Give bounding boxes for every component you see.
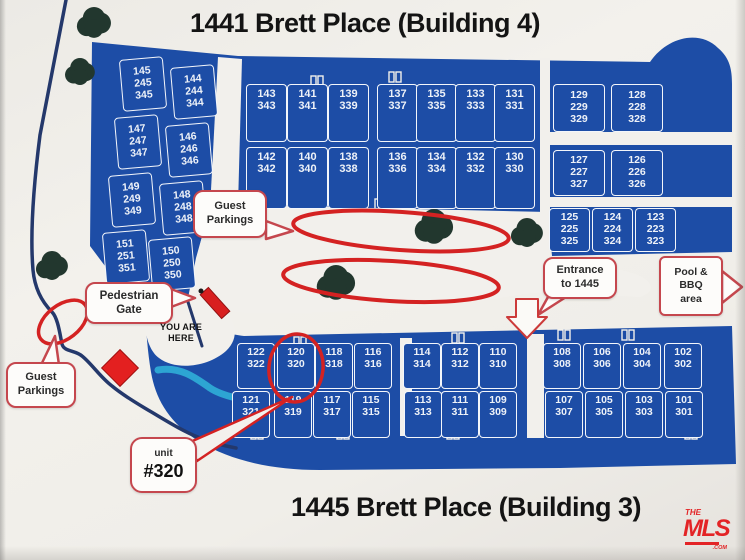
unit-cell: 128228328 xyxy=(611,84,663,132)
unit-number: 337 xyxy=(388,100,406,112)
unit-cell: 149249349 xyxy=(108,172,156,228)
unit-cell: 127227327 xyxy=(553,150,605,196)
unit-cell: 145245345 xyxy=(119,56,167,112)
unit-number: 301 xyxy=(675,407,693,419)
unit-number: 308 xyxy=(553,359,571,371)
unit-number: 341 xyxy=(298,100,316,112)
unit-number: 314 xyxy=(413,359,431,371)
unit-number: 304 xyxy=(633,359,651,371)
unit-number: 347 xyxy=(130,147,148,160)
callout-line: #320 xyxy=(143,460,183,483)
building-4-title: 1441 Brett Place (Building 4) xyxy=(115,8,615,39)
unit-number: 317 xyxy=(323,407,341,419)
unit-number: 348 xyxy=(175,213,193,226)
unit-number: 333 xyxy=(466,100,484,112)
unit-cell: 106306 xyxy=(583,343,621,389)
unit-number: 112 xyxy=(452,347,469,359)
unit-number: 105 xyxy=(595,395,613,407)
callout-guest-parkings-left: Guest Parkings xyxy=(6,362,76,408)
unit-cell: 136336 xyxy=(377,147,418,209)
callout-entrance-1445: Entrance to 1445 xyxy=(543,257,617,299)
unit-cell: 111311 xyxy=(441,391,479,438)
unit-cell: 116316 xyxy=(354,343,392,389)
callout-line: Guest xyxy=(25,371,56,385)
unit-number: 306 xyxy=(593,359,611,371)
site-map-sign: 1452453451442443441472473471462463461492… xyxy=(0,0,745,560)
unit-cell: 125225325 xyxy=(549,208,590,252)
unit-number: 340 xyxy=(298,163,316,175)
mls-logo: THE MLS .COM xyxy=(683,509,739,551)
unit-number: 321 xyxy=(242,407,260,419)
unit-number: 316 xyxy=(364,359,382,371)
callout-line: Pool & xyxy=(674,266,707,280)
unit-cell: 141341 xyxy=(287,84,328,142)
unit-cell: 129229329 xyxy=(553,84,605,132)
unit-number: 302 xyxy=(674,359,692,371)
unit-number: 310 xyxy=(489,359,507,371)
unit-number: 319 xyxy=(284,407,302,419)
unit-cell: 103303 xyxy=(625,391,663,438)
unit-number: 351 xyxy=(118,262,136,275)
unit-number: 334 xyxy=(427,163,445,175)
unit-number: 140 xyxy=(298,151,316,163)
unit-number: 104 xyxy=(633,347,651,359)
callout-line: unit xyxy=(154,448,172,461)
unit-cell: 135335 xyxy=(416,84,457,142)
unit-number: 122 xyxy=(247,347,265,359)
unit-cell: 143343 xyxy=(246,84,287,142)
unit-cell: 101301 xyxy=(665,391,703,438)
unit-cell: 121321 xyxy=(232,391,270,438)
unit-number: 303 xyxy=(635,407,653,419)
you-are-here-line: YOU ARE xyxy=(142,322,220,333)
callout-line: Pedestrian xyxy=(100,289,159,303)
callout-line: to 1445 xyxy=(561,278,599,292)
unit-number: 315 xyxy=(362,407,380,419)
unit-number: 330 xyxy=(505,163,523,175)
unit-cell: 119319 xyxy=(274,391,312,438)
unit-number: 329 xyxy=(570,114,588,126)
unit-cell: 126226326 xyxy=(611,150,663,196)
unit-number: 325 xyxy=(561,236,579,248)
callout-pool-bbq: Pool & BBQ area xyxy=(659,256,723,316)
unit-cell: 122322 xyxy=(237,343,275,389)
unit-number: 305 xyxy=(595,407,613,419)
unit-number: 107 xyxy=(555,395,573,407)
unit-number: 108 xyxy=(553,347,571,359)
unit-number: 130 xyxy=(505,151,523,163)
unit-cell: 107307 xyxy=(545,391,583,438)
unit-cell: 113313 xyxy=(404,391,442,438)
callout-guest-parkings-top: Guest Parkings xyxy=(193,190,267,238)
unit-cell: 110310 xyxy=(479,343,517,389)
unit-cell: 123223323 xyxy=(635,208,676,252)
unit-number: 109 xyxy=(489,395,507,407)
unit-cell: 132332 xyxy=(455,147,496,209)
unit-number: 110 xyxy=(490,347,507,359)
unit-number: 115 xyxy=(363,395,380,407)
unit-cell: 151251351 xyxy=(102,229,150,285)
unit-number: 312 xyxy=(451,359,469,371)
unit-cell: 134334 xyxy=(416,147,457,209)
unit-number: 332 xyxy=(466,163,484,175)
mls-logo-mls: MLS xyxy=(683,517,739,541)
unit-cell: 112312 xyxy=(441,343,479,389)
callout-line: Parkings xyxy=(207,214,253,228)
unit-number: 142 xyxy=(257,151,275,163)
unit-cell: 109309 xyxy=(479,391,517,438)
unit-cell: 138338 xyxy=(328,147,369,209)
unit-number: 335 xyxy=(427,100,445,112)
unit-cell: 117317 xyxy=(313,391,351,438)
unit-number: 134 xyxy=(427,151,445,163)
unit-number: 133 xyxy=(466,88,484,100)
unit-cell: 118318 xyxy=(315,343,353,389)
unit-number: 102 xyxy=(674,347,692,359)
unit-number: 138 xyxy=(339,151,357,163)
unit-cell: 147247347 xyxy=(114,114,162,170)
callout-line: Parkings xyxy=(18,385,64,399)
unit-number: 345 xyxy=(135,89,153,102)
unit-number: 350 xyxy=(164,269,182,282)
unit-number: 120 xyxy=(287,347,305,359)
unit-number: 118 xyxy=(326,347,343,359)
unit-cell: 104304 xyxy=(623,343,661,389)
you-are-here-label: YOU ARE HERE xyxy=(142,322,220,345)
unit-number: 131 xyxy=(505,88,523,100)
callout-line: BBQ xyxy=(679,279,702,293)
unit-number: 111 xyxy=(452,395,468,407)
unit-number: 141 xyxy=(298,88,316,100)
unit-number: 342 xyxy=(257,163,275,175)
unit-cell: 115315 xyxy=(352,391,390,438)
unit-cell: 140340 xyxy=(287,147,328,209)
unit-number: 103 xyxy=(635,395,653,407)
unit-cell: 131331 xyxy=(494,84,535,142)
unit-cell: 146246346 xyxy=(165,122,213,178)
mls-logo-com: .COM xyxy=(683,546,727,552)
unit-number: 136 xyxy=(388,151,406,163)
unit-number: 116 xyxy=(365,347,382,359)
unit-number: 143 xyxy=(257,88,275,100)
unit-number: 139 xyxy=(339,88,357,100)
unit-number: 117 xyxy=(324,395,341,407)
unit-number: 339 xyxy=(339,100,357,112)
callout-line: Guest xyxy=(214,200,245,214)
unit-cell: 105305 xyxy=(585,391,623,438)
unit-number: 113 xyxy=(415,395,432,407)
unit-number: 106 xyxy=(593,347,611,359)
callout-unit-320: unit #320 xyxy=(130,437,197,493)
unit-number: 313 xyxy=(414,407,432,419)
callout-pedestrian-gate: Pedestrian Gate xyxy=(85,282,173,324)
unit-number: 344 xyxy=(186,97,204,110)
unit-cell: 139339 xyxy=(328,84,369,142)
unit-cells-layer: 1452453451442443441472473471462463461492… xyxy=(0,0,745,560)
unit-number: 326 xyxy=(628,179,646,191)
unit-number: 132 xyxy=(466,151,484,163)
unit-number: 119 xyxy=(285,395,302,407)
unit-number: 349 xyxy=(124,205,142,218)
unit-number: 343 xyxy=(257,100,275,112)
you-are-here-line: HERE xyxy=(142,333,220,344)
unit-number: 323 xyxy=(647,236,665,248)
unit-number: 346 xyxy=(181,155,199,168)
unit-number: 328 xyxy=(628,114,646,126)
unit-number: 336 xyxy=(388,163,406,175)
unit-cell: 144244344 xyxy=(170,64,218,120)
unit-number: 327 xyxy=(570,179,588,191)
unit-number: 322 xyxy=(247,359,265,371)
unit-number: 307 xyxy=(555,407,573,419)
unit-cell: 130330 xyxy=(494,147,535,209)
unit-cell: 120320 xyxy=(277,343,315,389)
unit-cell: 102302 xyxy=(664,343,702,389)
building-3-title: 1445 Brett Place (Building 3) xyxy=(266,492,666,523)
unit-number: 338 xyxy=(339,163,357,175)
unit-number: 137 xyxy=(388,88,406,100)
unit-number: 121 xyxy=(242,395,260,407)
unit-number: 324 xyxy=(604,236,622,248)
callout-line: Gate xyxy=(116,303,142,317)
unit-cell: 114314 xyxy=(403,343,441,389)
unit-number: 318 xyxy=(325,359,343,371)
unit-number: 331 xyxy=(505,100,523,112)
unit-number: 101 xyxy=(675,395,693,407)
unit-number: 311 xyxy=(452,407,469,419)
unit-cell: 108308 xyxy=(543,343,581,389)
callout-line: area xyxy=(680,293,702,307)
unit-number: 135 xyxy=(427,88,445,100)
unit-number: 320 xyxy=(287,359,305,371)
callout-line: Entrance xyxy=(556,264,603,278)
unit-cell: 133333 xyxy=(455,84,496,142)
unit-cell: 124224324 xyxy=(592,208,633,252)
unit-cell: 137337 xyxy=(377,84,418,142)
unit-number: 114 xyxy=(414,347,431,359)
unit-number: 309 xyxy=(489,407,507,419)
